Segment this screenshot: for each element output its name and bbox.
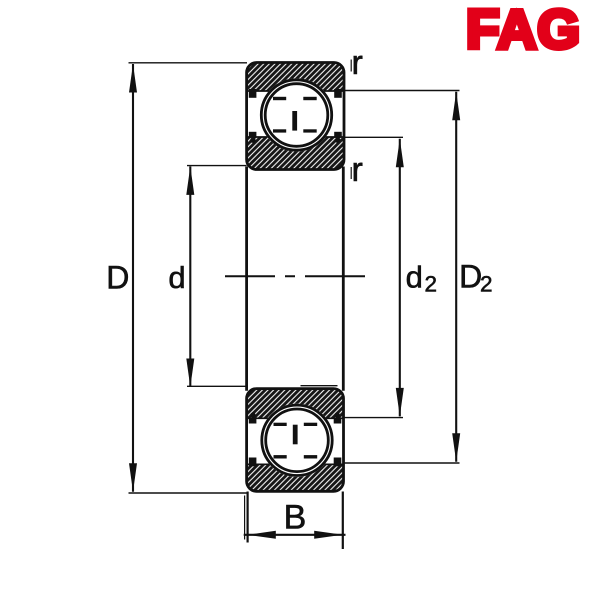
svg-text:D: D: [459, 259, 482, 295]
svg-text:d: d: [168, 260, 185, 295]
svg-text:r: r: [352, 44, 363, 82]
svg-text:r: r: [352, 151, 363, 189]
svg-text:B: B: [284, 499, 307, 537]
svg-text:2: 2: [480, 272, 493, 297]
svg-text:d: d: [406, 260, 423, 295]
svg-text:2: 2: [425, 272, 438, 297]
svg-text:D: D: [106, 260, 129, 296]
svg-text:FAG: FAG: [466, 0, 581, 60]
